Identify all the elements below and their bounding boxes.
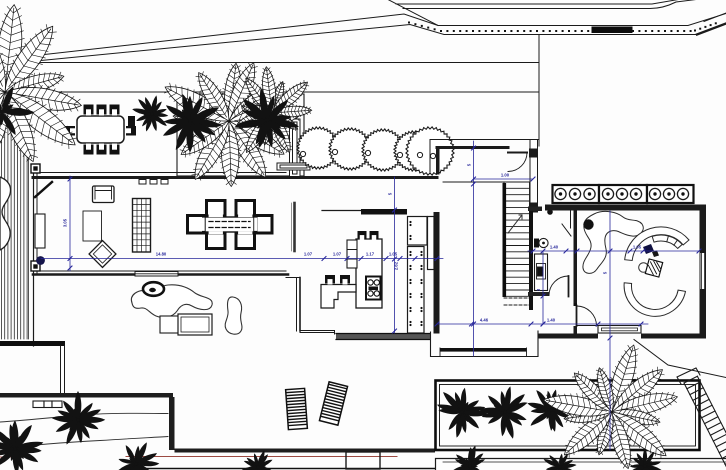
svg-text:1.40: 1.40	[547, 318, 556, 323]
svg-text:4.46: 4.46	[480, 318, 489, 323]
svg-text:3.05: 3.05	[63, 218, 68, 227]
svg-text:1.00: 1.00	[501, 173, 510, 178]
svg-text:2.62: 2.62	[394, 261, 399, 270]
svg-text:1.05: 1.05	[633, 245, 642, 250]
svg-text:1.07: 1.07	[304, 252, 313, 257]
svg-text:1.40: 1.40	[550, 245, 559, 250]
svg-text:1.07: 1.07	[333, 252, 342, 257]
svg-text:1.17: 1.17	[366, 252, 375, 257]
svg-text:14.80: 14.80	[156, 252, 167, 257]
svg-text:1.05: 1.05	[389, 252, 398, 257]
